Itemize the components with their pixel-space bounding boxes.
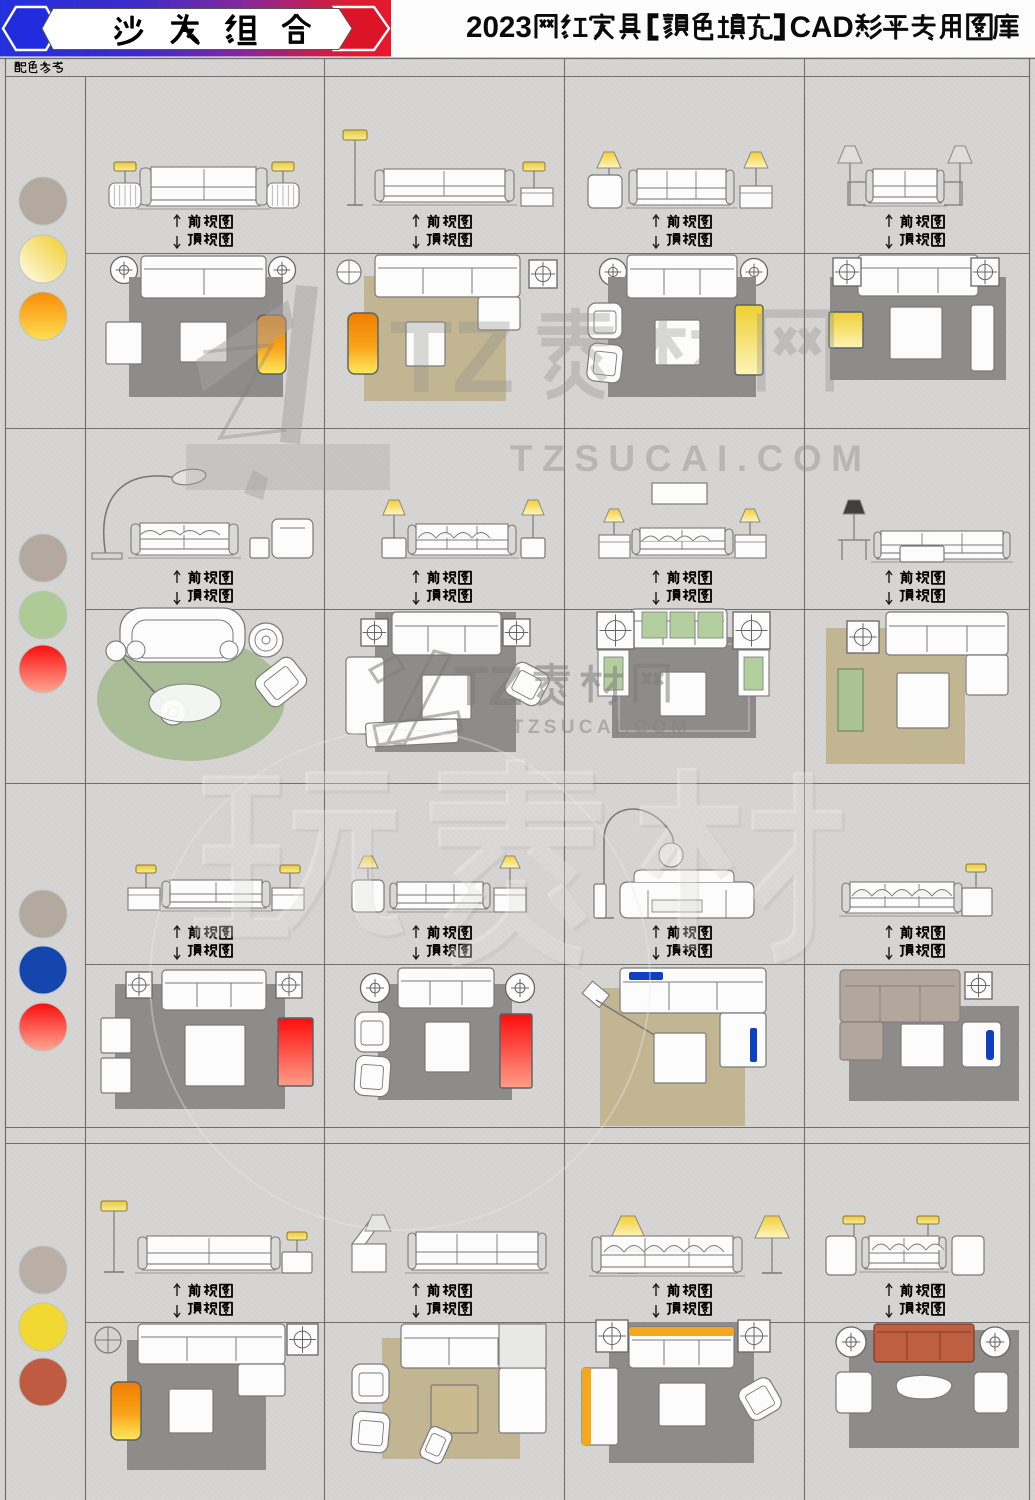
svg-text:TZ: TZ [454,654,522,717]
svg-text:TZ: TZ [390,300,515,414]
svg-text:2023: 2023 [466,11,532,44]
svg-text:CAD: CAD [790,11,854,44]
svg-text:TZSUCAI.COM: TZSUCAI.COM [512,717,691,738]
svg-text:TZSUCAI.COM: TZSUCAI.COM [510,438,871,479]
